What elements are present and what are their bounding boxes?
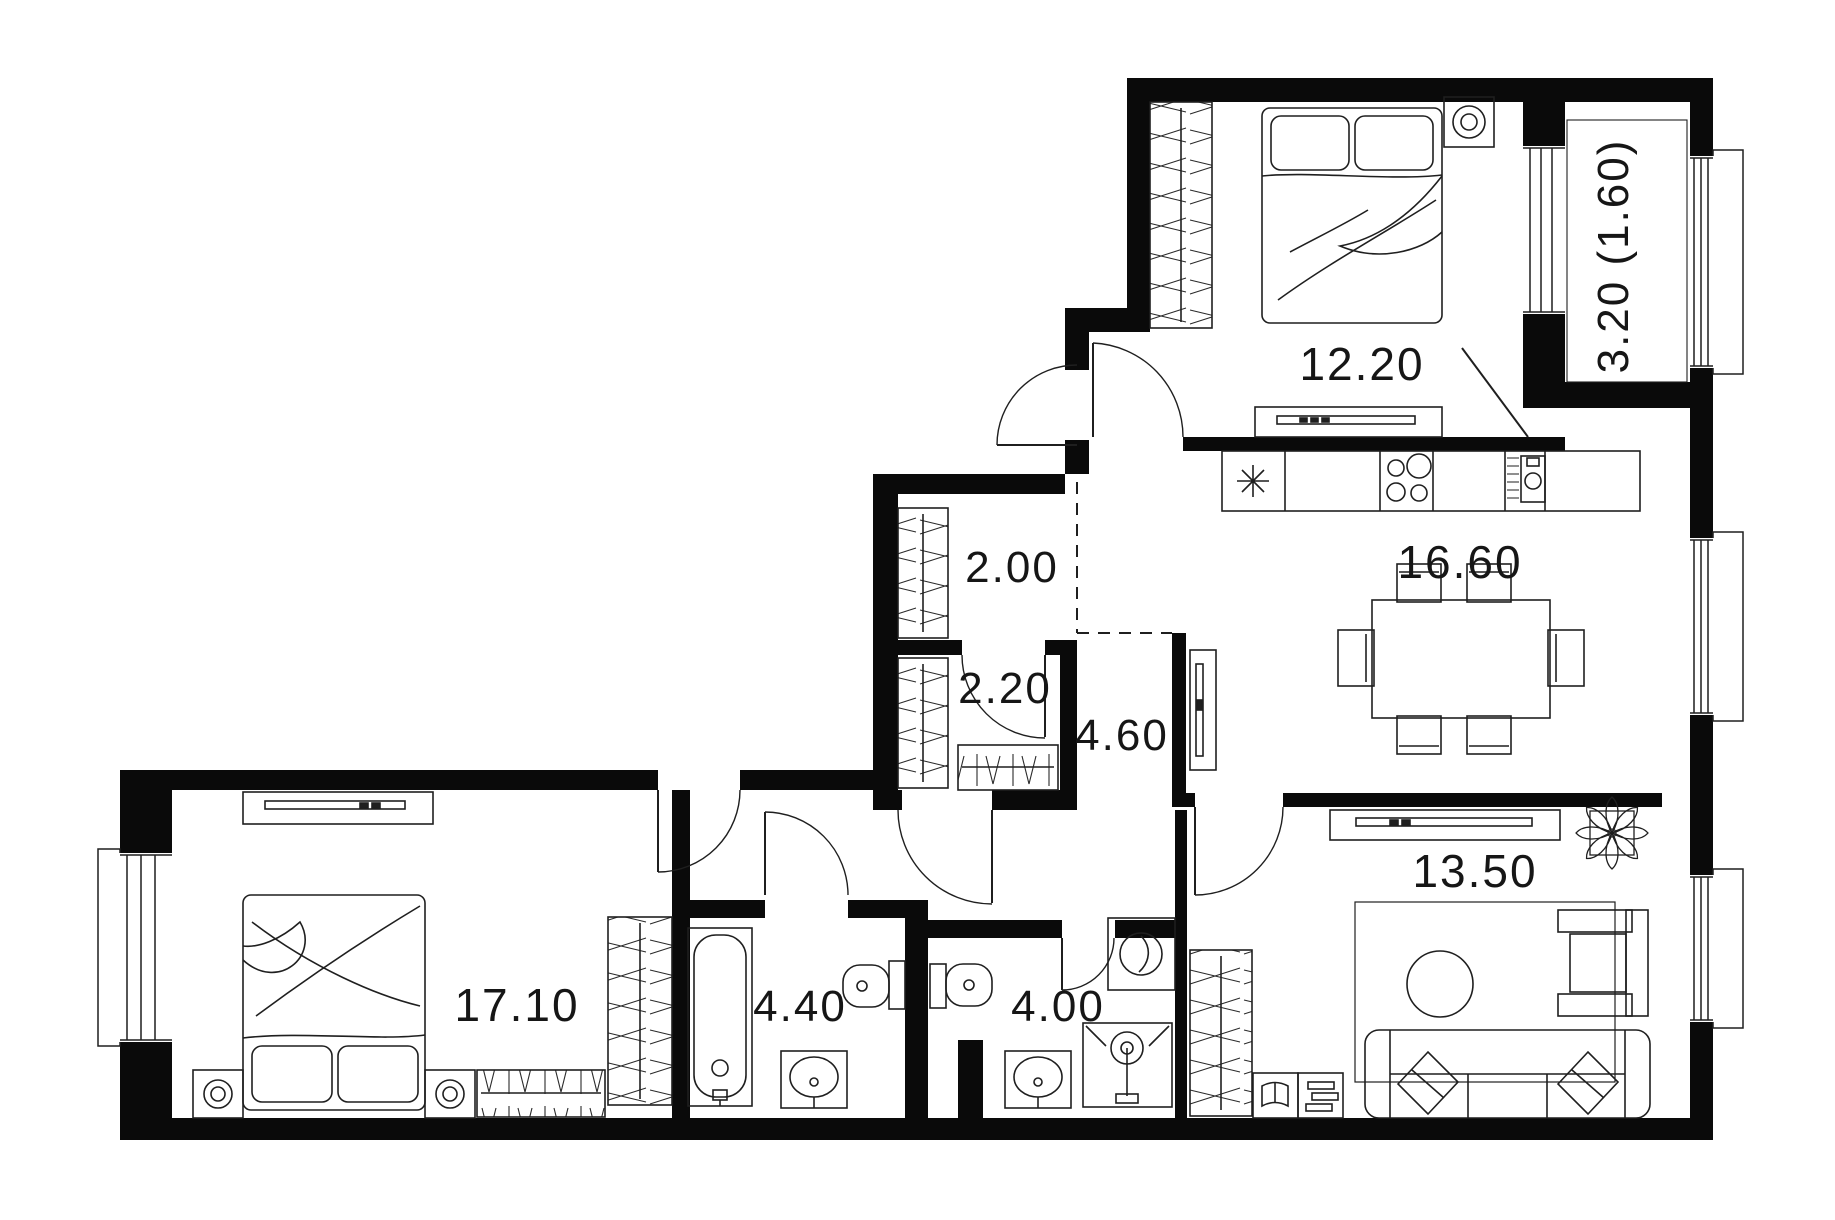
duct-shaft [958, 1040, 983, 1118]
wall-entry-top [1065, 308, 1089, 370]
room-label-wc: 4.00 [1011, 982, 1105, 1031]
wall-closet-bottom-right [992, 790, 1077, 810]
wall-hallway-top [873, 474, 1065, 494]
washbasin-icon [1005, 1051, 1071, 1108]
toilet-icon [930, 964, 992, 1008]
wall-top [1127, 78, 1713, 102]
wall-lamp-icon [1444, 97, 1494, 147]
door-bedroom-top [1093, 343, 1183, 437]
bench-icon [477, 1070, 605, 1117]
wall-bedroom-kitchen [1183, 437, 1565, 451]
wardrobe-icon [1150, 102, 1212, 328]
double-bed-icon [1262, 108, 1442, 323]
bedroom-left-furniture [193, 792, 672, 1118]
shoe-rack-icon [958, 745, 1058, 790]
window-kitchen [1688, 532, 1743, 721]
stove-icon [1387, 454, 1431, 501]
wall-wc-living [1175, 810, 1187, 1118]
hallway-furniture [898, 508, 948, 638]
wall-balcony-partition-bottom [1523, 312, 1565, 408]
window-living [1688, 869, 1743, 1028]
door-bathroom [765, 812, 848, 895]
kitchen-furniture [1190, 451, 1640, 770]
shower-icon [1083, 1023, 1172, 1107]
wardrobe-icon [898, 508, 948, 638]
room-labels: 12.20 3.20 (1.60) 2.00 16.60 2.20 4.60 1… [454, 139, 1638, 1031]
wall-between-baths [905, 900, 928, 1118]
wall-bath-top-right [848, 900, 905, 918]
wall-balcony-partition-top [1523, 102, 1565, 148]
zone-boundary-dashed [1077, 482, 1172, 633]
wall-bottom [120, 1118, 1713, 1140]
room-label-bedroom-top: 12.20 [1299, 338, 1424, 390]
room-label-balcony: 3.20 (1.60) [1589, 139, 1638, 374]
tv-console-icon [1190, 650, 1216, 770]
room-label-corridor: 4.60 [1075, 711, 1169, 760]
fridge-icon [1237, 465, 1269, 497]
plant-icon [1576, 797, 1648, 869]
wall-wc-top-right [1115, 920, 1175, 938]
bookshelf-icon [1253, 1073, 1343, 1118]
door-corridor [898, 810, 992, 904]
wardrobe-icon [1190, 950, 1252, 1116]
floor-plan-canvas: 12.20 3.20 (1.60) 2.00 16.60 2.20 4.60 1… [0, 0, 1835, 1220]
wall-upper-left [1127, 78, 1150, 310]
bathtub-icon [688, 928, 752, 1106]
nightstand-icon [425, 1070, 475, 1118]
room-label-kitchen: 16.60 [1397, 536, 1522, 588]
wall-right-1 [1690, 102, 1713, 158]
kitchen-counter-icon [1222, 451, 1640, 511]
wall-kitchen-living-stub [1172, 793, 1195, 807]
wall-left-corner-top [120, 770, 172, 855]
washbasin-icon [781, 1051, 847, 1108]
room-label-living: 13.50 [1412, 845, 1537, 897]
toilet-icon [843, 961, 905, 1009]
tv-console-icon [1330, 810, 1560, 840]
wardrobe-icon [898, 658, 948, 788]
floor-plan-drawing: 12.20 3.20 (1.60) 2.00 16.60 2.20 4.60 1… [0, 0, 1835, 1220]
wall-corridor-top [740, 770, 877, 790]
double-bed-icon [243, 895, 425, 1110]
room-label-closet: 2.20 [958, 664, 1052, 713]
armchair-icon [1558, 910, 1648, 1016]
entry-door [997, 365, 1077, 445]
wardrobe-icon [608, 917, 672, 1105]
wall-bath-top-left [690, 900, 765, 918]
wall-right-3 [1690, 713, 1713, 877]
room-label-bathroom: 4.40 [753, 982, 847, 1031]
wall-corridor-kitchen [1172, 633, 1186, 807]
wall-right-2 [1690, 366, 1713, 540]
wall-hallway-left [873, 474, 898, 810]
coffee-table-icon [1407, 951, 1473, 1017]
room-label-bedroom-left: 17.10 [454, 979, 579, 1031]
wall-left-corner-bottom [120, 1040, 172, 1120]
dresser-icon [1255, 407, 1442, 437]
door-balcony [1462, 348, 1528, 437]
dining-table-icon [1338, 564, 1584, 754]
wall-right-4 [1690, 1020, 1713, 1140]
kitchen-sink-icon [1507, 456, 1545, 502]
wall-closet-top-left [898, 640, 962, 655]
wall-kitchen-living [1283, 793, 1662, 807]
window-balcony [1688, 150, 1743, 374]
sofa-icon [1365, 1030, 1650, 1118]
room-label-hallway: 2.00 [965, 543, 1059, 592]
door-living [1195, 807, 1283, 895]
door-bedroom-left [658, 790, 740, 872]
wall-wc-top-left [928, 920, 1062, 938]
tv-console-icon [243, 792, 433, 824]
wall-closet-bottom-left [873, 790, 902, 810]
wall-bedroom-left-top [120, 770, 658, 790]
window-bedroom-left [98, 849, 174, 1046]
window-balcony-partition [1521, 146, 1567, 314]
nightstand-icon [193, 1070, 243, 1118]
